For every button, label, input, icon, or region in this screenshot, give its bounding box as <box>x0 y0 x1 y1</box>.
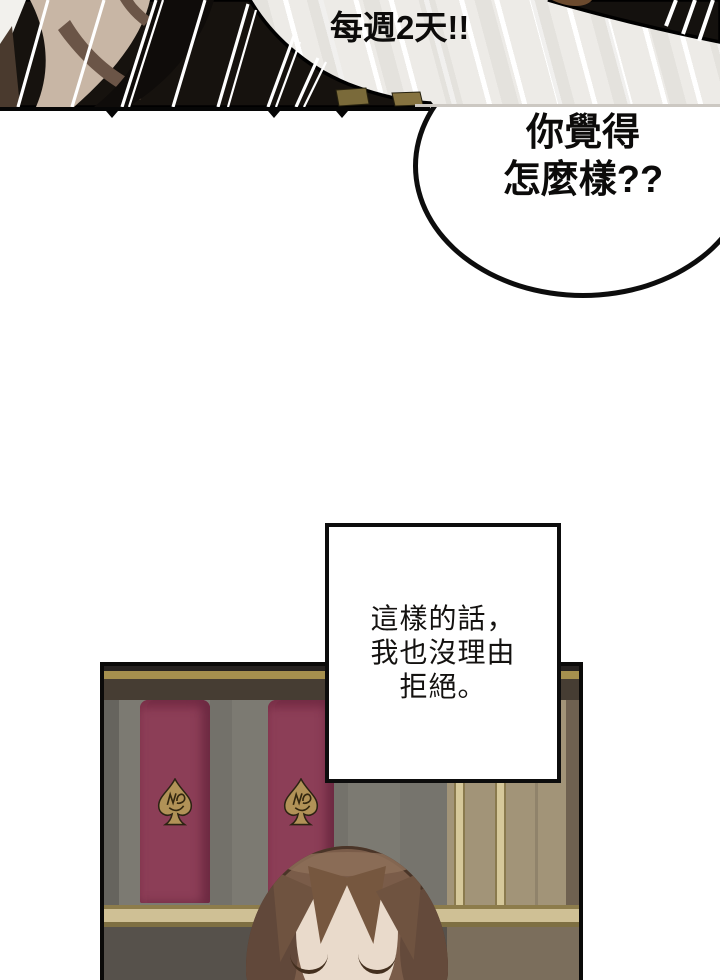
bubble-line-1: 你覺得 <box>463 110 703 157</box>
speech-bubble-text: 你覺得 怎麼樣?? <box>463 110 703 204</box>
border-notch <box>106 111 118 118</box>
caption-text: 這樣的話， 我也沒理由 拒絕。 <box>329 603 557 705</box>
baseboard <box>447 927 579 980</box>
border-notch <box>336 111 348 118</box>
panel-soft-edge <box>415 104 720 107</box>
spade-icon <box>155 778 195 826</box>
comic-page: 每週2天!! 你覺得 怎麼樣?? <box>0 0 720 980</box>
caption-box: 這樣的話， 我也沒理由 拒絕。 <box>325 523 561 783</box>
top-panel-border <box>0 107 430 111</box>
shout-text: 每週2天!! <box>330 1 469 49</box>
top-panel: 每週2天!! <box>0 0 720 107</box>
caption-line-2: 我也沒理由 <box>329 637 557 671</box>
red-banner <box>140 700 210 903</box>
bubble-line-2: 怎麼樣?? <box>463 157 703 204</box>
spade-icon <box>281 778 321 826</box>
character-hair <box>246 846 448 980</box>
caption-line-1: 這樣的話， <box>329 603 557 637</box>
hair-highlight <box>282 852 414 876</box>
character-head <box>246 846 448 980</box>
border-notch <box>268 111 280 118</box>
caption-line-3: 拒絕。 <box>329 671 557 705</box>
